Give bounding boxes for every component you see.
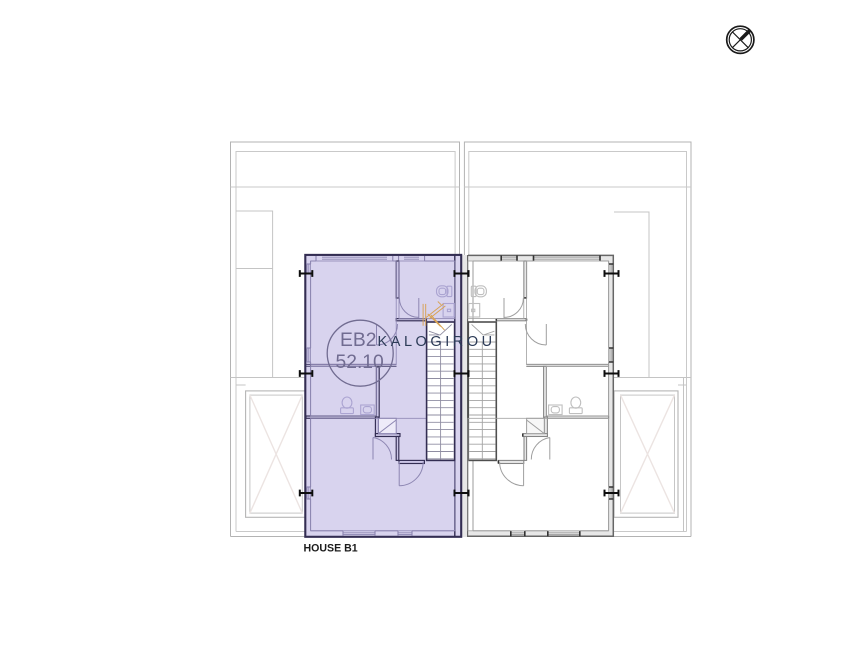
svg-text:52.10: 52.10 bbox=[336, 352, 384, 373]
svg-text:HOUSE B1: HOUSE B1 bbox=[304, 542, 358, 554]
svg-text:EB2: EB2 bbox=[340, 330, 376, 351]
svg-text:KALOGIROU: KALOGIROU bbox=[378, 334, 496, 350]
